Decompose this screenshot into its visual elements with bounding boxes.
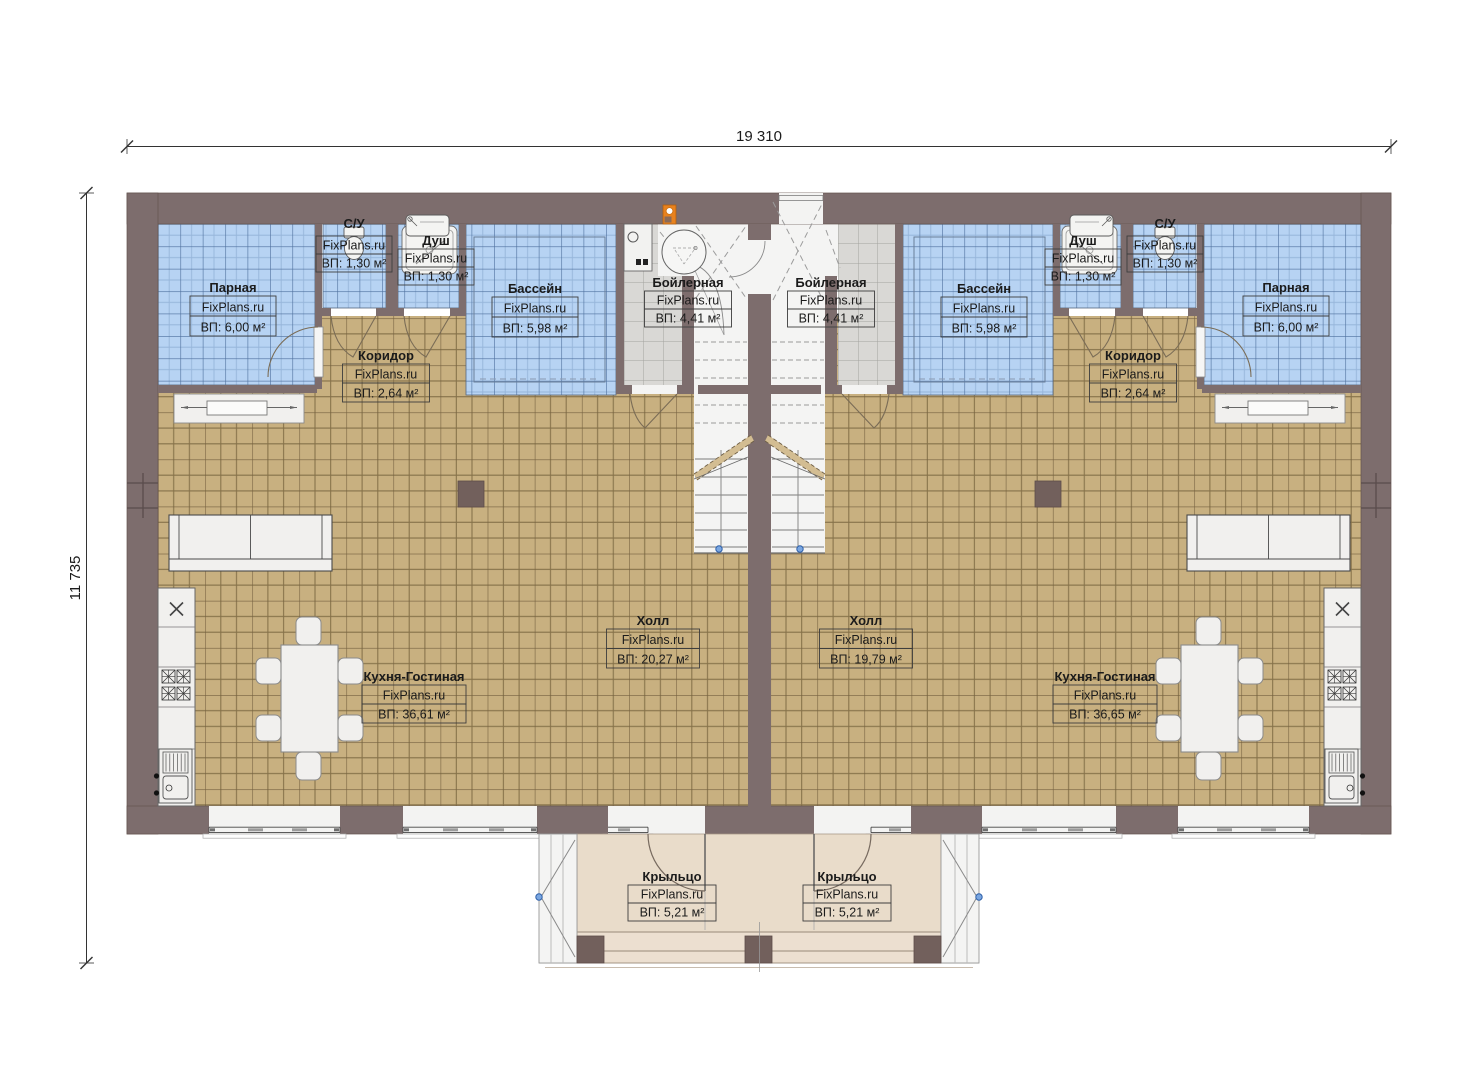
svg-text:ВП: 5,98 м²: ВП: 5,98 м² [503,322,568,336]
svg-text:ВП: 6,00 м²: ВП: 6,00 м² [1254,321,1319,335]
svg-text:ВП: 1,30 м²: ВП: 1,30 м² [1051,270,1116,284]
svg-text:ВП: 4,41 м²: ВП: 4,41 м² [656,312,721,326]
svg-text:ВП: 36,65 м²: ВП: 36,65 м² [1069,708,1141,722]
svg-text:11 735: 11 735 [67,556,84,601]
svg-text:FixPlans.ru: FixPlans.ru [657,294,720,308]
svg-text:ВП: 1,30 м²: ВП: 1,30 м² [1133,257,1198,271]
svg-text:FixPlans.ru: FixPlans.ru [816,888,879,902]
svg-text:ВП: 19,79 м²: ВП: 19,79 м² [830,653,902,667]
svg-text:FixPlans.ru: FixPlans.ru [504,302,567,316]
svg-text:ВП: 5,98 м²: ВП: 5,98 м² [952,322,1017,336]
svg-text:ВП: 20,27 м²: ВП: 20,27 м² [617,653,689,667]
svg-text:Парная: Парная [1262,280,1309,295]
svg-text:Парная: Парная [209,280,256,295]
svg-text:FixPlans.ru: FixPlans.ru [405,252,468,266]
svg-text:FixPlans.ru: FixPlans.ru [1255,301,1318,315]
svg-text:ВП: 2,64 м²: ВП: 2,64 м² [354,387,419,401]
svg-text:Коридор: Коридор [358,348,414,363]
svg-text:FixPlans.ru: FixPlans.ru [953,302,1016,316]
svg-text:ВП: 5,21 м²: ВП: 5,21 м² [815,906,880,920]
svg-text:FixPlans.ru: FixPlans.ru [1102,368,1165,382]
svg-text:Крыльцо: Крыльцо [817,869,876,884]
svg-text:FixPlans.ru: FixPlans.ru [383,689,446,703]
svg-text:FixPlans.ru: FixPlans.ru [355,368,418,382]
svg-text:Душ: Душ [422,233,450,248]
svg-text:Душ: Душ [1069,233,1097,248]
svg-text:С/У: С/У [343,216,365,231]
svg-text:С/У: С/У [1154,216,1176,231]
svg-text:FixPlans.ru: FixPlans.ru [800,294,863,308]
svg-text:ВП: 36,61 м²: ВП: 36,61 м² [378,708,450,722]
svg-text:Кухня-Гостиная: Кухня-Гостиная [1054,669,1155,684]
svg-text:FixPlans.ru: FixPlans.ru [1052,252,1115,266]
svg-text:Бойлерная: Бойлерная [795,275,866,290]
svg-text:Крыльцо: Крыльцо [642,869,701,884]
svg-text:Холл: Холл [850,613,883,628]
svg-text:FixPlans.ru: FixPlans.ru [622,633,685,647]
svg-text:ВП: 1,30 м²: ВП: 1,30 м² [404,270,469,284]
svg-text:FixPlans.ru: FixPlans.ru [835,633,898,647]
svg-text:Кухня-Гостиная: Кухня-Гостиная [363,669,464,684]
svg-text:Бассейн: Бассейн [508,281,562,296]
svg-text:ВП: 2,64 м²: ВП: 2,64 м² [1101,387,1166,401]
svg-text:ВП: 6,00 м²: ВП: 6,00 м² [201,321,266,335]
svg-text:19 310: 19 310 [736,128,782,145]
svg-text:FixPlans.ru: FixPlans.ru [1074,689,1137,703]
svg-text:FixPlans.ru: FixPlans.ru [202,301,265,315]
svg-text:FixPlans.ru: FixPlans.ru [1134,239,1197,253]
svg-text:ВП: 5,21 м²: ВП: 5,21 м² [640,906,705,920]
svg-text:Коридор: Коридор [1105,348,1161,363]
svg-text:Бассейн: Бассейн [957,281,1011,296]
svg-text:ВП: 1,30 м²: ВП: 1,30 м² [322,257,387,271]
svg-text:FixPlans.ru: FixPlans.ru [323,239,386,253]
svg-text:FixPlans.ru: FixPlans.ru [641,888,704,902]
svg-text:Бойлерная: Бойлерная [652,275,723,290]
svg-text:ВП: 4,41 м²: ВП: 4,41 м² [799,312,864,326]
svg-text:Холл: Холл [637,613,670,628]
